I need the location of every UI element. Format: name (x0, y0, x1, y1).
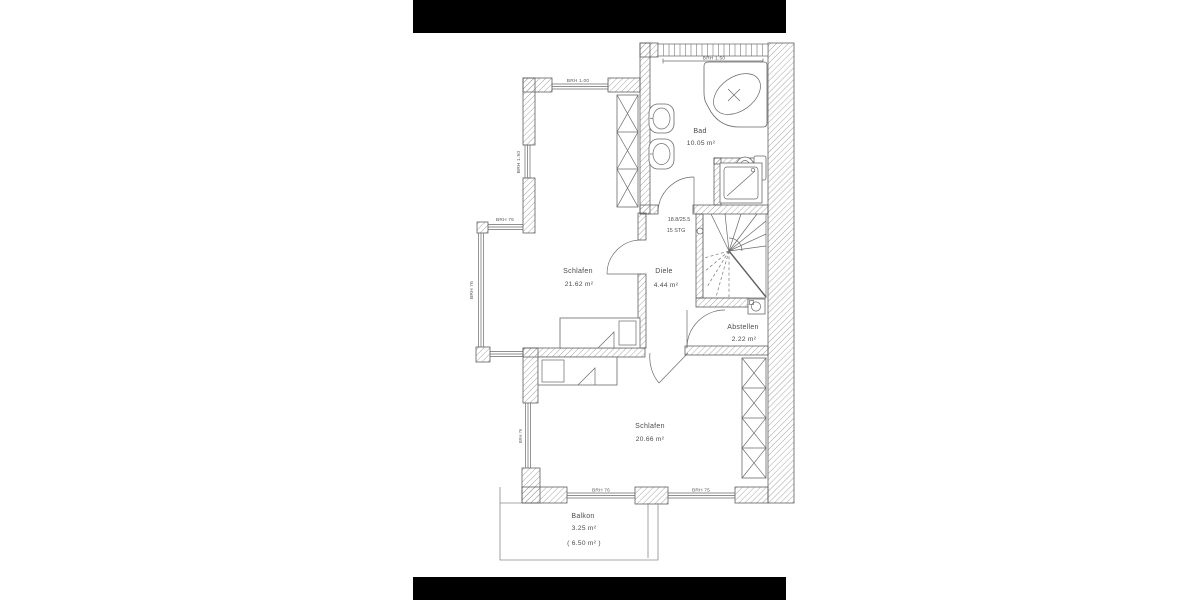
brh-label-bay-top: BRH 76 (496, 217, 514, 223)
window-bay-top (488, 225, 523, 230)
wall (523, 178, 535, 233)
brh-label-bottom-right: BRH 75 (692, 488, 710, 494)
wall-stairs (696, 214, 703, 298)
window-bottom-right (668, 493, 735, 498)
bathtub (704, 62, 768, 127)
room-label-schlafen-oben: Schlafen (563, 268, 593, 275)
room-label-bad: Bad (693, 128, 706, 135)
wall (638, 213, 646, 240)
brh-label-left-lower: BRH 76 (518, 428, 523, 443)
window-left-upper (523, 145, 532, 178)
bed (538, 357, 617, 385)
door-schlafen-unten (650, 353, 688, 383)
floor-plan: Bad 10.05 m² Schlafen 21.62 m² Diele 4.4… (0, 0, 1200, 600)
wall (640, 43, 650, 214)
bed (560, 318, 640, 348)
wall-pier (735, 487, 768, 503)
wall-left-lower (523, 348, 538, 403)
wall-exterior-right (768, 43, 794, 503)
wall-pier (635, 487, 668, 504)
wardrobe (742, 358, 766, 478)
brh-label-top: BRH 1.00 (567, 78, 590, 84)
brh-label-left-upper: BRH 1.50 (516, 151, 522, 174)
wall-bad-bottom (693, 205, 768, 214)
sink (649, 139, 674, 169)
stair-treads (711, 214, 766, 251)
wall-abstellen-bottom (685, 346, 768, 355)
screenshot-stage: Bad 10.05 m² Schlafen 21.62 m² Diele 4.4… (0, 0, 1200, 600)
window-left-lower (526, 403, 531, 468)
room-area-abstellen: 2.22 m² (732, 336, 757, 343)
room-label-schlafen-unten: Schlafen (635, 423, 665, 430)
room-label-abstellen: Abstellen (727, 324, 759, 331)
stairs-dimension: 18.8/25.5 (668, 217, 690, 223)
door-bad (658, 177, 694, 213)
brh-label-bottom-left: BRH 76 (592, 488, 610, 494)
window-bay-side (479, 233, 484, 347)
room-area-balkon: 3.25 m² (572, 525, 597, 532)
room-area-diele: 4.44 m² (654, 282, 679, 289)
wardrobe (617, 95, 638, 207)
room-label-diele: Diele (655, 268, 672, 275)
wall-left-upper (523, 78, 535, 145)
stair-treads-below (704, 251, 729, 297)
staircase (697, 214, 766, 298)
wall-stairs-bottom (696, 298, 748, 307)
door-schlafen-oben (607, 240, 641, 274)
room-area-schlafen-unten: 20.66 m² (636, 436, 665, 443)
room-area-bad: 10.05 m² (687, 140, 716, 147)
boiler (748, 299, 765, 314)
window-bay-bottom (490, 352, 523, 357)
door-abstellen (687, 310, 725, 348)
room-label-balkon: Balkon (571, 513, 594, 520)
newel-post (697, 228, 703, 234)
shower (720, 163, 762, 203)
wall-bay-pier (477, 222, 488, 233)
room-area-schlafen-oben: 21.62 m² (565, 281, 594, 288)
wall-bay-pier (476, 347, 490, 362)
brh-label-bay-side: BRH 76 (469, 281, 475, 299)
window-bottom-left (567, 493, 635, 498)
brh-label-bad-top: BRH 1.50 (703, 56, 726, 62)
wall-corner (522, 487, 567, 503)
room-area-balkon-total: ( 6.50 m² ) (567, 540, 601, 547)
bad-fixtures (649, 62, 768, 314)
wall (608, 78, 640, 92)
wall-room-divider (523, 348, 645, 357)
sink (649, 104, 674, 133)
stairs-steps: 15 STG (667, 228, 686, 234)
